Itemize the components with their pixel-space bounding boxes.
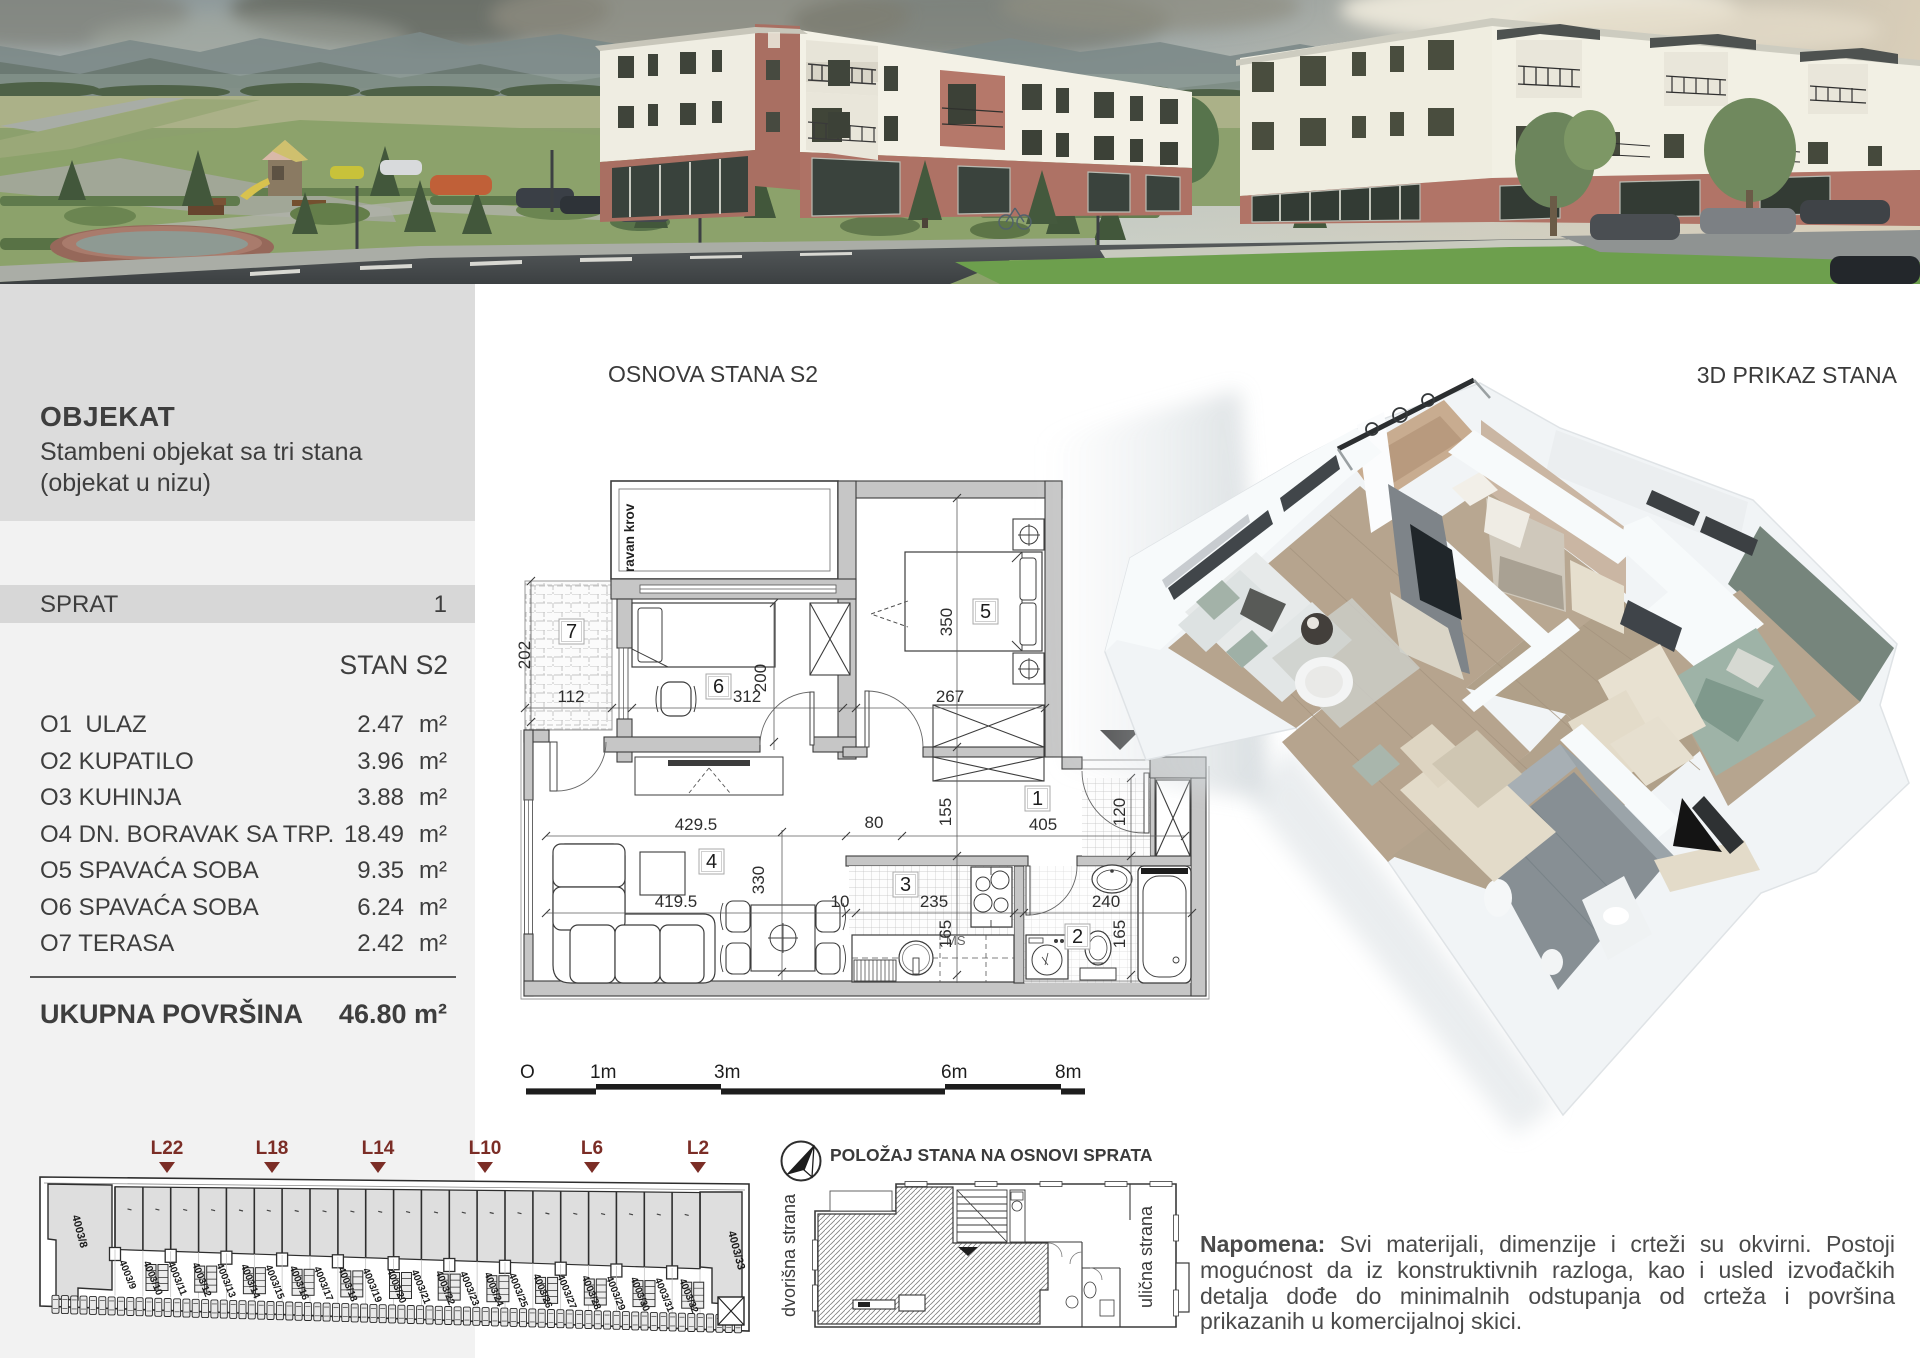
svg-text:ulična strana: ulična strana: [1136, 1205, 1156, 1308]
svg-text:112: 112: [557, 687, 584, 706]
svg-text:3D PRIKAZ STANA: 3D PRIKAZ STANA: [1697, 362, 1898, 388]
svg-text:202: 202: [515, 641, 534, 669]
svg-text:7: 7: [566, 621, 577, 643]
svg-text:330: 330: [749, 866, 768, 894]
svg-text:419.5: 419.5: [655, 892, 698, 911]
svg-text:155: 155: [936, 798, 955, 826]
svg-text:L14: L14: [362, 1138, 395, 1159]
svg-text:L22: L22: [151, 1138, 184, 1159]
svg-text:235: 235: [920, 892, 948, 911]
svg-text:1m: 1m: [590, 1062, 616, 1083]
svg-text:429.5: 429.5: [675, 815, 718, 834]
svg-text:L2: L2: [687, 1138, 709, 1159]
svg-text:dvorišna strana: dvorišna strana: [779, 1193, 799, 1317]
svg-text:6m: 6m: [941, 1062, 967, 1083]
svg-text:165: 165: [1110, 920, 1129, 948]
svg-text:120: 120: [1110, 798, 1129, 826]
svg-text:ravan krov: ravan krov: [622, 503, 637, 572]
svg-text:5: 5: [980, 601, 991, 623]
svg-text:200: 200: [751, 664, 770, 692]
svg-text:3: 3: [900, 874, 911, 896]
svg-text:L10: L10: [469, 1138, 502, 1159]
svg-text:165: 165: [936, 920, 955, 948]
svg-text:OSNOVA STANA S2: OSNOVA STANA S2: [608, 361, 818, 387]
svg-text:80: 80: [865, 813, 884, 832]
svg-text:350: 350: [937, 608, 956, 636]
svg-text:3m: 3m: [714, 1062, 740, 1083]
svg-text:4: 4: [706, 851, 717, 873]
svg-text:POLOŽAJ STANA NA OSNOVI SPRATA: POLOŽAJ STANA NA OSNOVI SPRATA: [830, 1144, 1153, 1165]
svg-text:6: 6: [713, 676, 724, 698]
svg-text:L6: L6: [581, 1138, 603, 1159]
svg-text:267: 267: [936, 687, 964, 706]
svg-text:240: 240: [1092, 892, 1120, 911]
svg-text:1: 1: [1032, 788, 1043, 810]
svg-text:2: 2: [1072, 926, 1083, 948]
svg-text:L18: L18: [256, 1138, 289, 1159]
svg-text:O: O: [520, 1062, 535, 1083]
svg-text:405: 405: [1029, 815, 1057, 834]
svg-text:10: 10: [831, 892, 850, 911]
svg-text:8m: 8m: [1055, 1062, 1081, 1083]
